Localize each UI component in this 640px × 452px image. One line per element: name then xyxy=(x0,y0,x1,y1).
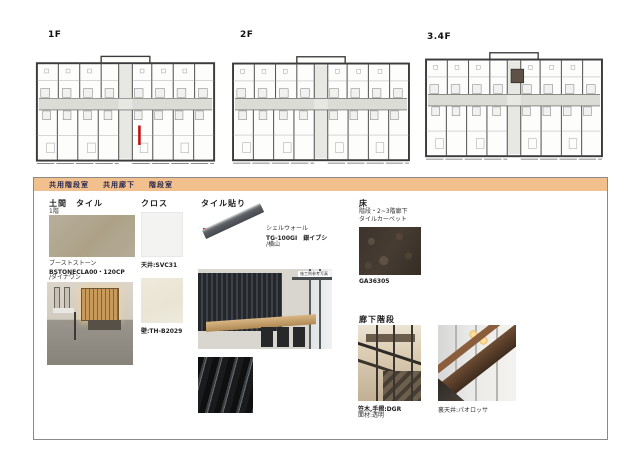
legend-tab-common-stair-room: 共用階段室 xyxy=(49,180,89,190)
carpet-tile-swatch xyxy=(359,227,421,275)
floor-plan-1f xyxy=(33,48,218,168)
stair-steps xyxy=(383,371,421,401)
floor-plan-2f xyxy=(222,50,420,166)
lobby-counter xyxy=(53,308,74,313)
cafe-chair xyxy=(293,327,305,348)
frame-mullion xyxy=(496,325,498,401)
floor-subtitle-1: 階段・2~3階廊下 xyxy=(359,208,408,216)
lobby-pole xyxy=(74,312,77,340)
doma-maker: /ダイナワン xyxy=(49,274,81,282)
tile-closeup-photo xyxy=(198,357,253,413)
cloth-title: クロス xyxy=(141,198,168,209)
window-mullion xyxy=(309,269,311,349)
cafe-chair xyxy=(261,327,273,348)
tile-title: タイル貼り xyxy=(201,198,246,209)
window-mullion xyxy=(319,269,321,349)
legend-tab-common-corridor: 共用廊下 xyxy=(103,180,135,190)
stairs-caption-left-2: 面材:透明 xyxy=(358,412,384,420)
wall-cloth-swatch xyxy=(141,278,183,323)
materials-board: 共用階段室 共用廊下 階段室 土間 タイル 1階 ブーストストーン BSTONE… xyxy=(33,177,608,440)
plan-label-34f: 3.4F xyxy=(427,32,451,42)
cafe-chair xyxy=(277,327,289,348)
floor-subtitle-2: タイルカーペット xyxy=(359,216,407,224)
doma-tile-swatch xyxy=(49,215,135,257)
lobby-wood-wall xyxy=(81,288,119,321)
railing-post xyxy=(393,325,395,401)
tile-wall-reference-photo: 施工例参考写真 xyxy=(198,269,332,349)
photo-caption-tag: 施工例参考写真 xyxy=(298,271,330,277)
lobby-mirror xyxy=(54,287,60,309)
stair-underside-photo xyxy=(438,325,516,401)
tile-product-name: シェルウォール xyxy=(266,225,308,233)
ceiling-cloth-code: 天井:SVC31 xyxy=(141,260,177,269)
floor-plan-34f xyxy=(420,46,608,162)
plan-label-1f: 1F xyxy=(48,30,61,40)
railing-post xyxy=(376,325,378,401)
railing-post xyxy=(411,325,413,401)
window-beam xyxy=(292,277,332,280)
stairs-caption-right: 裏天井:パオロッサ xyxy=(438,407,488,415)
lobby-bench xyxy=(88,320,121,330)
carpet-code: GA36305 xyxy=(359,278,389,285)
stairs-title: 廊下階段 xyxy=(359,314,395,325)
stair-slab xyxy=(366,334,415,342)
lobby-reference-photo xyxy=(47,282,133,365)
legend-tab-bar: 共用階段室 共用廊下 階段室 xyxy=(34,178,607,191)
legend-tab-stair-room: 階段室 xyxy=(149,180,173,190)
tile-maker: /横山 xyxy=(266,241,280,249)
lobby-mirror xyxy=(64,287,70,309)
plan-label-2f: 2F xyxy=(240,30,253,40)
material-spec-sheet: 1F 2F 3.4F 共用階段室 共用廊下 階段室 土間 タイル 1階 ブースト… xyxy=(0,0,640,452)
stairwell-photo xyxy=(358,325,421,401)
ceiling-cloth-swatch xyxy=(141,212,183,257)
wall-cloth-code: 壁:TH-B2029 xyxy=(141,326,182,335)
